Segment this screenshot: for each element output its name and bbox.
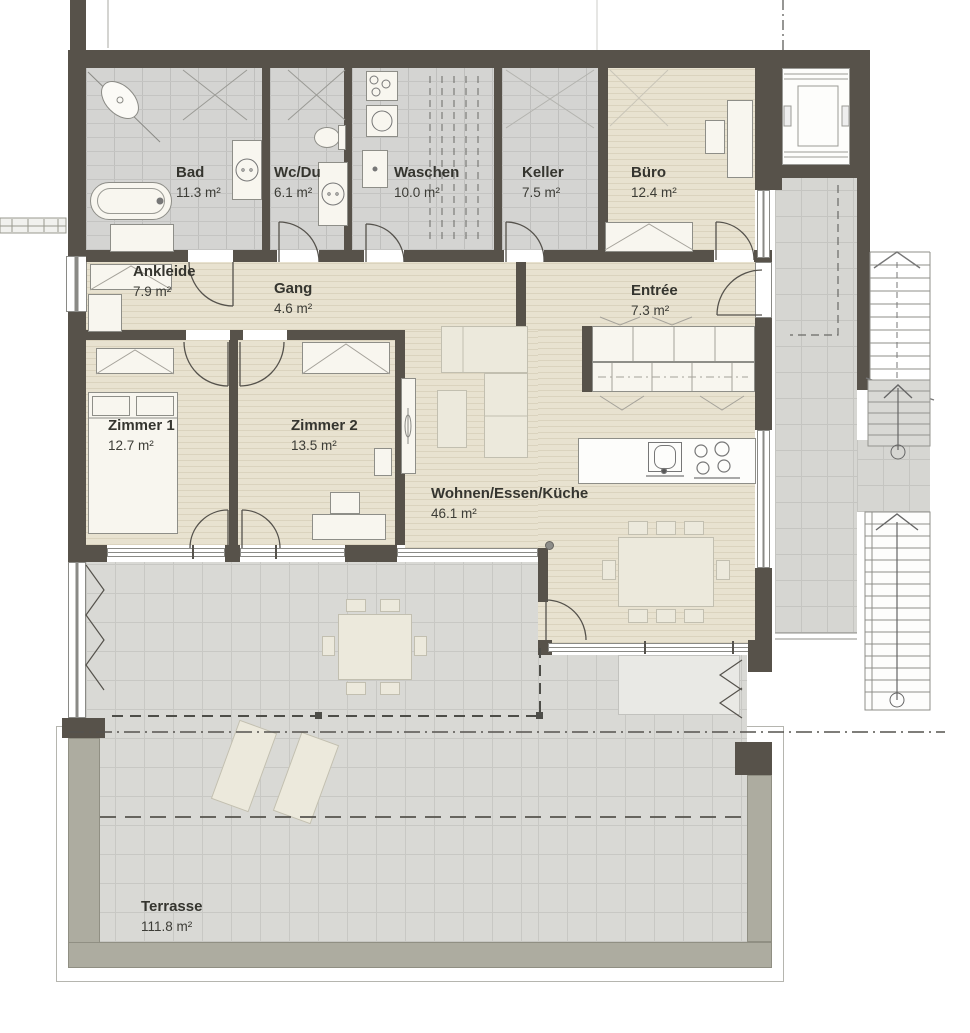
room-label-keller: Keller 7.5 m²	[522, 165, 564, 200]
toilet-tank	[338, 125, 346, 150]
terrace-chair	[322, 636, 335, 656]
wall-left-lower	[68, 312, 86, 562]
room-area: 4.6 m²	[274, 302, 312, 317]
wall-stub-top	[70, 0, 86, 56]
room-name: Büro	[631, 165, 677, 182]
room-name: Terrasse	[141, 899, 202, 916]
dining-chair	[716, 560, 730, 580]
zimmer1-window	[107, 548, 225, 557]
bathtub-inner	[97, 188, 165, 214]
tv-board	[401, 378, 416, 474]
buero-window	[757, 190, 770, 258]
room-name: Keller	[522, 165, 564, 182]
wall-top	[68, 50, 870, 68]
zimmer2-nightstand	[374, 448, 392, 476]
entry-door-opening	[755, 262, 772, 318]
pier-sw	[68, 545, 107, 562]
wall-z1-z2	[229, 340, 238, 545]
room-name: Zimmer 1	[108, 418, 175, 435]
room-label-waschen: Waschen 10.0 m²	[394, 165, 459, 200]
entree-wardrobe-row2	[592, 362, 755, 392]
terrace-chair	[380, 599, 400, 612]
wall-elevator-right	[850, 50, 870, 178]
living-terrace-window	[397, 548, 538, 557]
entree-wardrobe-post	[582, 326, 592, 392]
dining-chair	[684, 609, 704, 623]
toilet	[314, 127, 340, 148]
zimmer1-pillow-1	[92, 396, 130, 416]
room-area: 10.0 m²	[394, 186, 459, 201]
pier-se	[748, 640, 772, 672]
wall-band-5	[544, 250, 608, 262]
entree-wardrobe-row1	[592, 326, 755, 362]
wall-east-living	[755, 568, 772, 640]
laundry-sink	[362, 150, 388, 188]
terrace-table	[338, 614, 412, 680]
sofa-side	[484, 373, 528, 458]
terrace-pier-left	[62, 718, 105, 738]
room-label-entree: Entrée 7.3 m²	[631, 283, 678, 318]
kitchen-sink-basin	[654, 445, 676, 469]
wall-hall-south-2	[230, 330, 243, 340]
wall-band-2	[233, 250, 277, 262]
terrace-chair	[380, 682, 400, 695]
wall-stair-side	[857, 178, 870, 390]
dining-chair	[628, 609, 648, 623]
room-area: 6.1 m²	[274, 186, 321, 201]
bad-cabinet	[110, 224, 174, 252]
room-name: Entrée	[631, 283, 678, 300]
desk	[727, 100, 753, 178]
room-name: Ankleide	[133, 264, 196, 281]
room-label-zimmer2: Zimmer 2 13.5 m²	[291, 418, 358, 453]
room-name: Zimmer 2	[291, 418, 358, 435]
wall-elevator-bottom	[772, 165, 850, 178]
folding-door-frame	[68, 562, 86, 718]
wall-band-4	[404, 250, 504, 262]
bad-vanity	[232, 140, 262, 200]
dining-table	[618, 537, 714, 607]
room-label-gang: Gang 4.6 m²	[274, 281, 312, 316]
stairs-upper-flight	[866, 252, 934, 400]
zimmer2-bed-head	[302, 342, 390, 374]
living-south-window	[548, 643, 755, 652]
planter-bottom	[68, 942, 772, 968]
terrace-chair	[346, 599, 366, 612]
ankleide-window	[66, 256, 87, 312]
buero-daybed	[605, 222, 693, 252]
wall-living-west	[538, 548, 548, 602]
room-label-ankleide: Ankleide 7.9 m²	[133, 264, 196, 299]
room-name: Waschen	[394, 165, 459, 182]
pier-z2-living	[345, 545, 397, 562]
room-label-buero: Büro 12.4 m²	[631, 165, 677, 200]
pier-mid	[225, 545, 240, 562]
room-area: 12.7 m²	[108, 439, 175, 454]
planter-left	[68, 738, 100, 968]
desk-chair	[705, 120, 725, 154]
room-area: 7.9 m²	[133, 285, 196, 300]
wcdu-vanity	[318, 162, 348, 226]
dining-chair	[656, 609, 676, 623]
zimmer2-sideboard	[312, 514, 386, 540]
elevator-shaft	[782, 68, 850, 165]
room-label-wcdu: Wc/Du 6.1 m²	[274, 165, 321, 200]
terrace-chair	[414, 636, 427, 656]
room-area: 11.3 m²	[176, 186, 221, 201]
laundry-appliance-1	[366, 71, 398, 101]
coffee-table	[437, 390, 467, 448]
wall-band-3	[319, 250, 364, 262]
planter-right	[747, 775, 772, 942]
dining-chair	[656, 521, 676, 535]
room-name: Bad	[176, 165, 221, 182]
room-area: 111.8 m²	[141, 920, 202, 935]
wall-gang-entree-stub	[516, 262, 526, 332]
room-name: Wc/Du	[274, 165, 321, 182]
zimmer2-chair	[330, 492, 360, 514]
room-label-wohnen: Wohnen/Essen/Küche 46.1 m²	[431, 486, 588, 521]
room-area: 7.3 m²	[631, 304, 678, 319]
room-area: 12.4 m²	[631, 186, 677, 201]
zimmer2-window	[240, 548, 345, 557]
dining-chair	[628, 521, 648, 535]
room-name: Wohnen/Essen/Küche	[431, 486, 588, 503]
wall-east-entree	[755, 318, 772, 430]
wall-waschen-keller	[494, 68, 502, 250]
floor-plan: Bad 11.3 m² Wc/Du 6.1 m² Waschen 10.0 m²…	[0, 0, 970, 1033]
wall-bad-wcdu	[262, 68, 270, 250]
ankleide-wardrobe-left	[88, 294, 122, 332]
room-area: 7.5 m²	[522, 186, 564, 201]
room-area: 46.1 m²	[431, 507, 588, 522]
terrace-step-strip	[618, 655, 740, 715]
zimmer1-wardrobe	[96, 348, 174, 374]
dining-chair	[684, 521, 704, 535]
wall-hall-south-3	[287, 330, 405, 340]
room-area: 13.5 m²	[291, 439, 358, 454]
living-east-window	[757, 430, 770, 568]
wall-left-upper	[68, 68, 86, 256]
walkway-tiles	[775, 178, 857, 633]
zimmer1-pillow-2	[136, 396, 174, 416]
steel-column	[545, 541, 554, 550]
sofa-top	[441, 326, 528, 373]
washing-machine	[366, 105, 398, 137]
terrace-chair	[346, 682, 366, 695]
stair-landing-tiles	[857, 440, 930, 512]
keller-floor	[502, 68, 598, 250]
room-name: Gang	[274, 281, 312, 298]
room-label-terrasse: Terrasse 111.8 m²	[141, 899, 202, 934]
room-label-bad: Bad 11.3 m²	[176, 165, 221, 200]
room-label-zimmer1: Zimmer 1 12.7 m²	[108, 418, 175, 453]
dining-chair	[602, 560, 616, 580]
terrace-pier-right	[735, 742, 772, 775]
wall-elevator-left	[772, 68, 782, 178]
